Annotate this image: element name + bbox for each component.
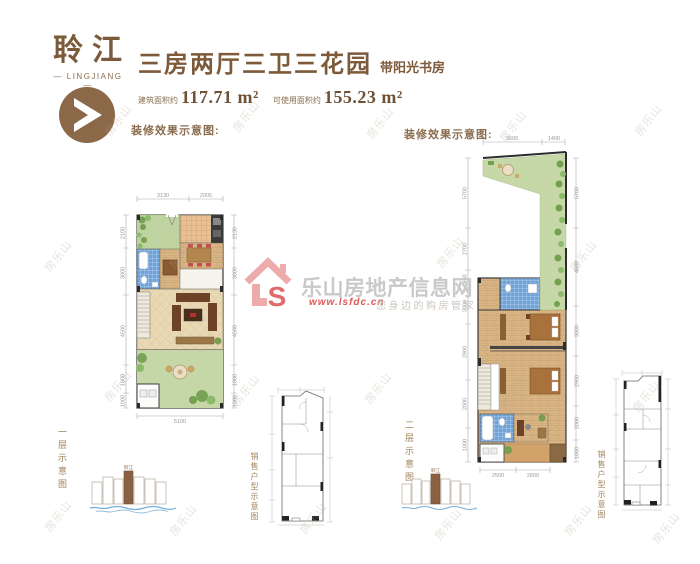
dim-label: 2005 [200, 193, 212, 199]
dim-label: 2800 [527, 473, 539, 479]
tower-label: 聆江 [431, 467, 440, 474]
watermark-tile: 房乐山 [363, 104, 398, 142]
dim-label: 2130 [233, 227, 239, 239]
dim-label: 1400 [548, 136, 560, 142]
site-logo-icon: S [243, 256, 293, 312]
dim-label: 4500 [121, 325, 127, 337]
water-icon [90, 507, 176, 510]
site-elevation-left: 聆江 [88, 462, 178, 514]
dim-label: 1800 [233, 374, 239, 386]
dim-label: 4600 [575, 261, 581, 273]
arrow-badge-icon [58, 86, 116, 144]
sales-mini-plan-left [266, 382, 336, 528]
partition-wall [490, 346, 566, 349]
plant [215, 338, 222, 345]
bathroom-area [137, 249, 160, 289]
dim-label: 3130 [157, 193, 169, 199]
watermark-tile: 房乐山 [361, 369, 396, 407]
sales-mini-plan-right [610, 365, 676, 517]
brand-title: 聆江 [53, 36, 131, 66]
first-floor-plan: 3130 2005 2100 3000 4500 1800 1000 2130 … [116, 190, 246, 430]
dim-label: 3000 [575, 325, 581, 337]
dim-label: 2900 [463, 346, 469, 358]
dim-label: 1000 [121, 395, 127, 407]
dim-label: 4500 [233, 325, 239, 337]
dim-label: 3600 [506, 136, 518, 142]
dim-label: 3000 [121, 267, 127, 279]
usable-area-value: 155.23 m² [324, 87, 403, 108]
highlighted-tower [124, 471, 133, 504]
dim-label: 1500 [233, 395, 239, 407]
dim-label: 1800 [121, 374, 127, 386]
sofa [176, 293, 210, 302]
sales-plan-left-label: 销售户型示意图 [250, 452, 258, 522]
watermark-tile: 房乐山 [561, 501, 596, 539]
built-area-label: 建筑面积约 [138, 95, 178, 106]
usable-area-label: 可使用面积约 [273, 95, 321, 106]
living-room-area [137, 289, 223, 350]
highlighted-tower [431, 474, 440, 504]
built-area-value: 117.71 m² [181, 87, 259, 108]
watermark-tile: 房乐山 [631, 101, 666, 139]
title-row: 三房两厅三卫三花园 带阳光书房 [138, 53, 445, 77]
dim-label: 2700 [463, 243, 469, 255]
staircase [137, 292, 150, 338]
dim-label: 3000 [233, 267, 239, 279]
bathroom-top [500, 278, 540, 310]
badge-circle [59, 87, 115, 143]
sales-plan-right-label: 销售户型示意图 [597, 450, 605, 520]
page-title-suffix: 带阳光书房 [380, 57, 445, 76]
terrace-table [503, 165, 514, 176]
front-garden-area [137, 215, 181, 249]
hallway-area [160, 249, 180, 289]
tower-label: 聆江 [124, 464, 133, 471]
dim-label: 5700 [575, 187, 581, 199]
dim-label: 5700 [463, 187, 469, 199]
watermark-tile: 房乐山 [41, 237, 76, 275]
rear-garden-area [136, 350, 223, 408]
dim-label: 2000 [575, 417, 581, 429]
bottom-strip [480, 444, 566, 462]
dim-label: 1000 [575, 447, 581, 459]
dim-label: 2900 [575, 375, 581, 387]
dim-label: 2500 [492, 473, 504, 479]
dining-area [180, 243, 223, 269]
study-area [514, 414, 548, 442]
area-row: 建筑面积约 117.71 m² 可使用面积约 155.23 m² [138, 87, 417, 108]
first-floor-label: 一层示意图 [57, 427, 66, 492]
left-render-caption: 装修效果示意图: [131, 122, 220, 138]
logo-letter: S [268, 281, 287, 312]
site-elevation-right: 聆江 [400, 466, 480, 514]
dim-label: 2000 [463, 398, 469, 410]
kitchen-area [180, 215, 223, 243]
page-title: 三房两厅三卫三花园 [138, 53, 372, 77]
dim-label: 2100 [121, 227, 127, 239]
dim-label: 1000 [463, 439, 469, 451]
flyer-page: 聆江 — LINGJIANG — 三房两厅三卫三花园 带阳光书房 建筑面积约 1… [0, 0, 700, 564]
water-icon [402, 507, 477, 510]
tv-cabinet [176, 337, 214, 344]
watermark-slogan: 您身边的购房管家 [376, 297, 476, 312]
watermark-tile: 房乐山 [41, 497, 76, 535]
bathroom-bottom [480, 414, 514, 442]
watermark-site-url: www.lsfdc.cn [309, 297, 385, 308]
dim-label: 5100 [174, 419, 186, 425]
staircase [478, 364, 491, 410]
